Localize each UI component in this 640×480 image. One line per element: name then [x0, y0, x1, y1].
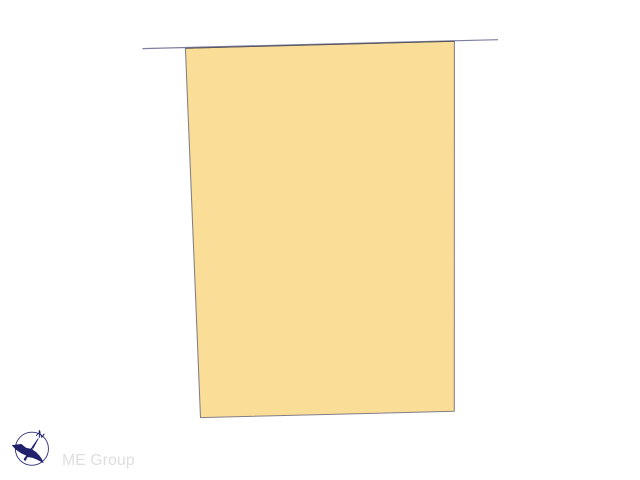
- svg-text:ME Group: ME Group: [62, 452, 135, 469]
